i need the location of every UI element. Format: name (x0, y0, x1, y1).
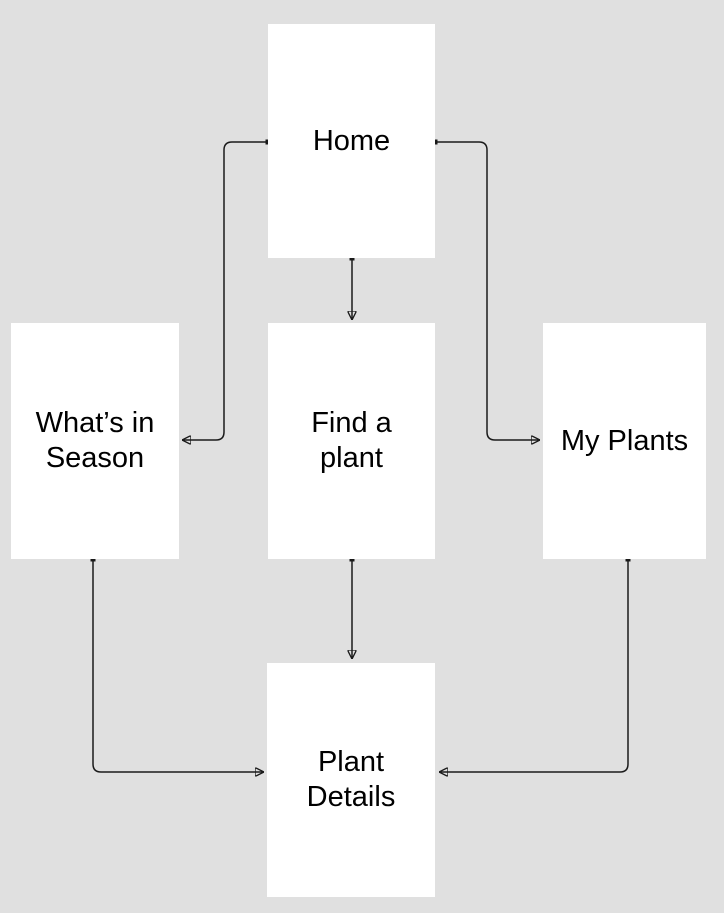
edge-home-to-whats-in-season (182, 142, 268, 440)
edge-my-plants-to-plant-details (439, 559, 628, 772)
node-whats-in-season-label: What’s in Season (36, 406, 155, 476)
node-home: Home (268, 24, 435, 258)
node-find-a-plant: Find a plant (268, 323, 435, 559)
node-plant-details: Plant Details (267, 663, 435, 897)
node-plant-details-label: Plant Details (307, 745, 396, 815)
edge-home-to-my-plants (435, 142, 540, 440)
edge-whats-in-season-to-plant-details (93, 559, 264, 772)
node-home-label: Home (313, 124, 390, 159)
diagram-canvas: Home What’s in Season Find a plant My Pl… (0, 0, 724, 913)
node-my-plants-label: My Plants (561, 424, 688, 459)
node-whats-in-season: What’s in Season (11, 323, 179, 559)
node-my-plants: My Plants (543, 323, 706, 559)
node-find-a-plant-label: Find a plant (311, 406, 392, 476)
